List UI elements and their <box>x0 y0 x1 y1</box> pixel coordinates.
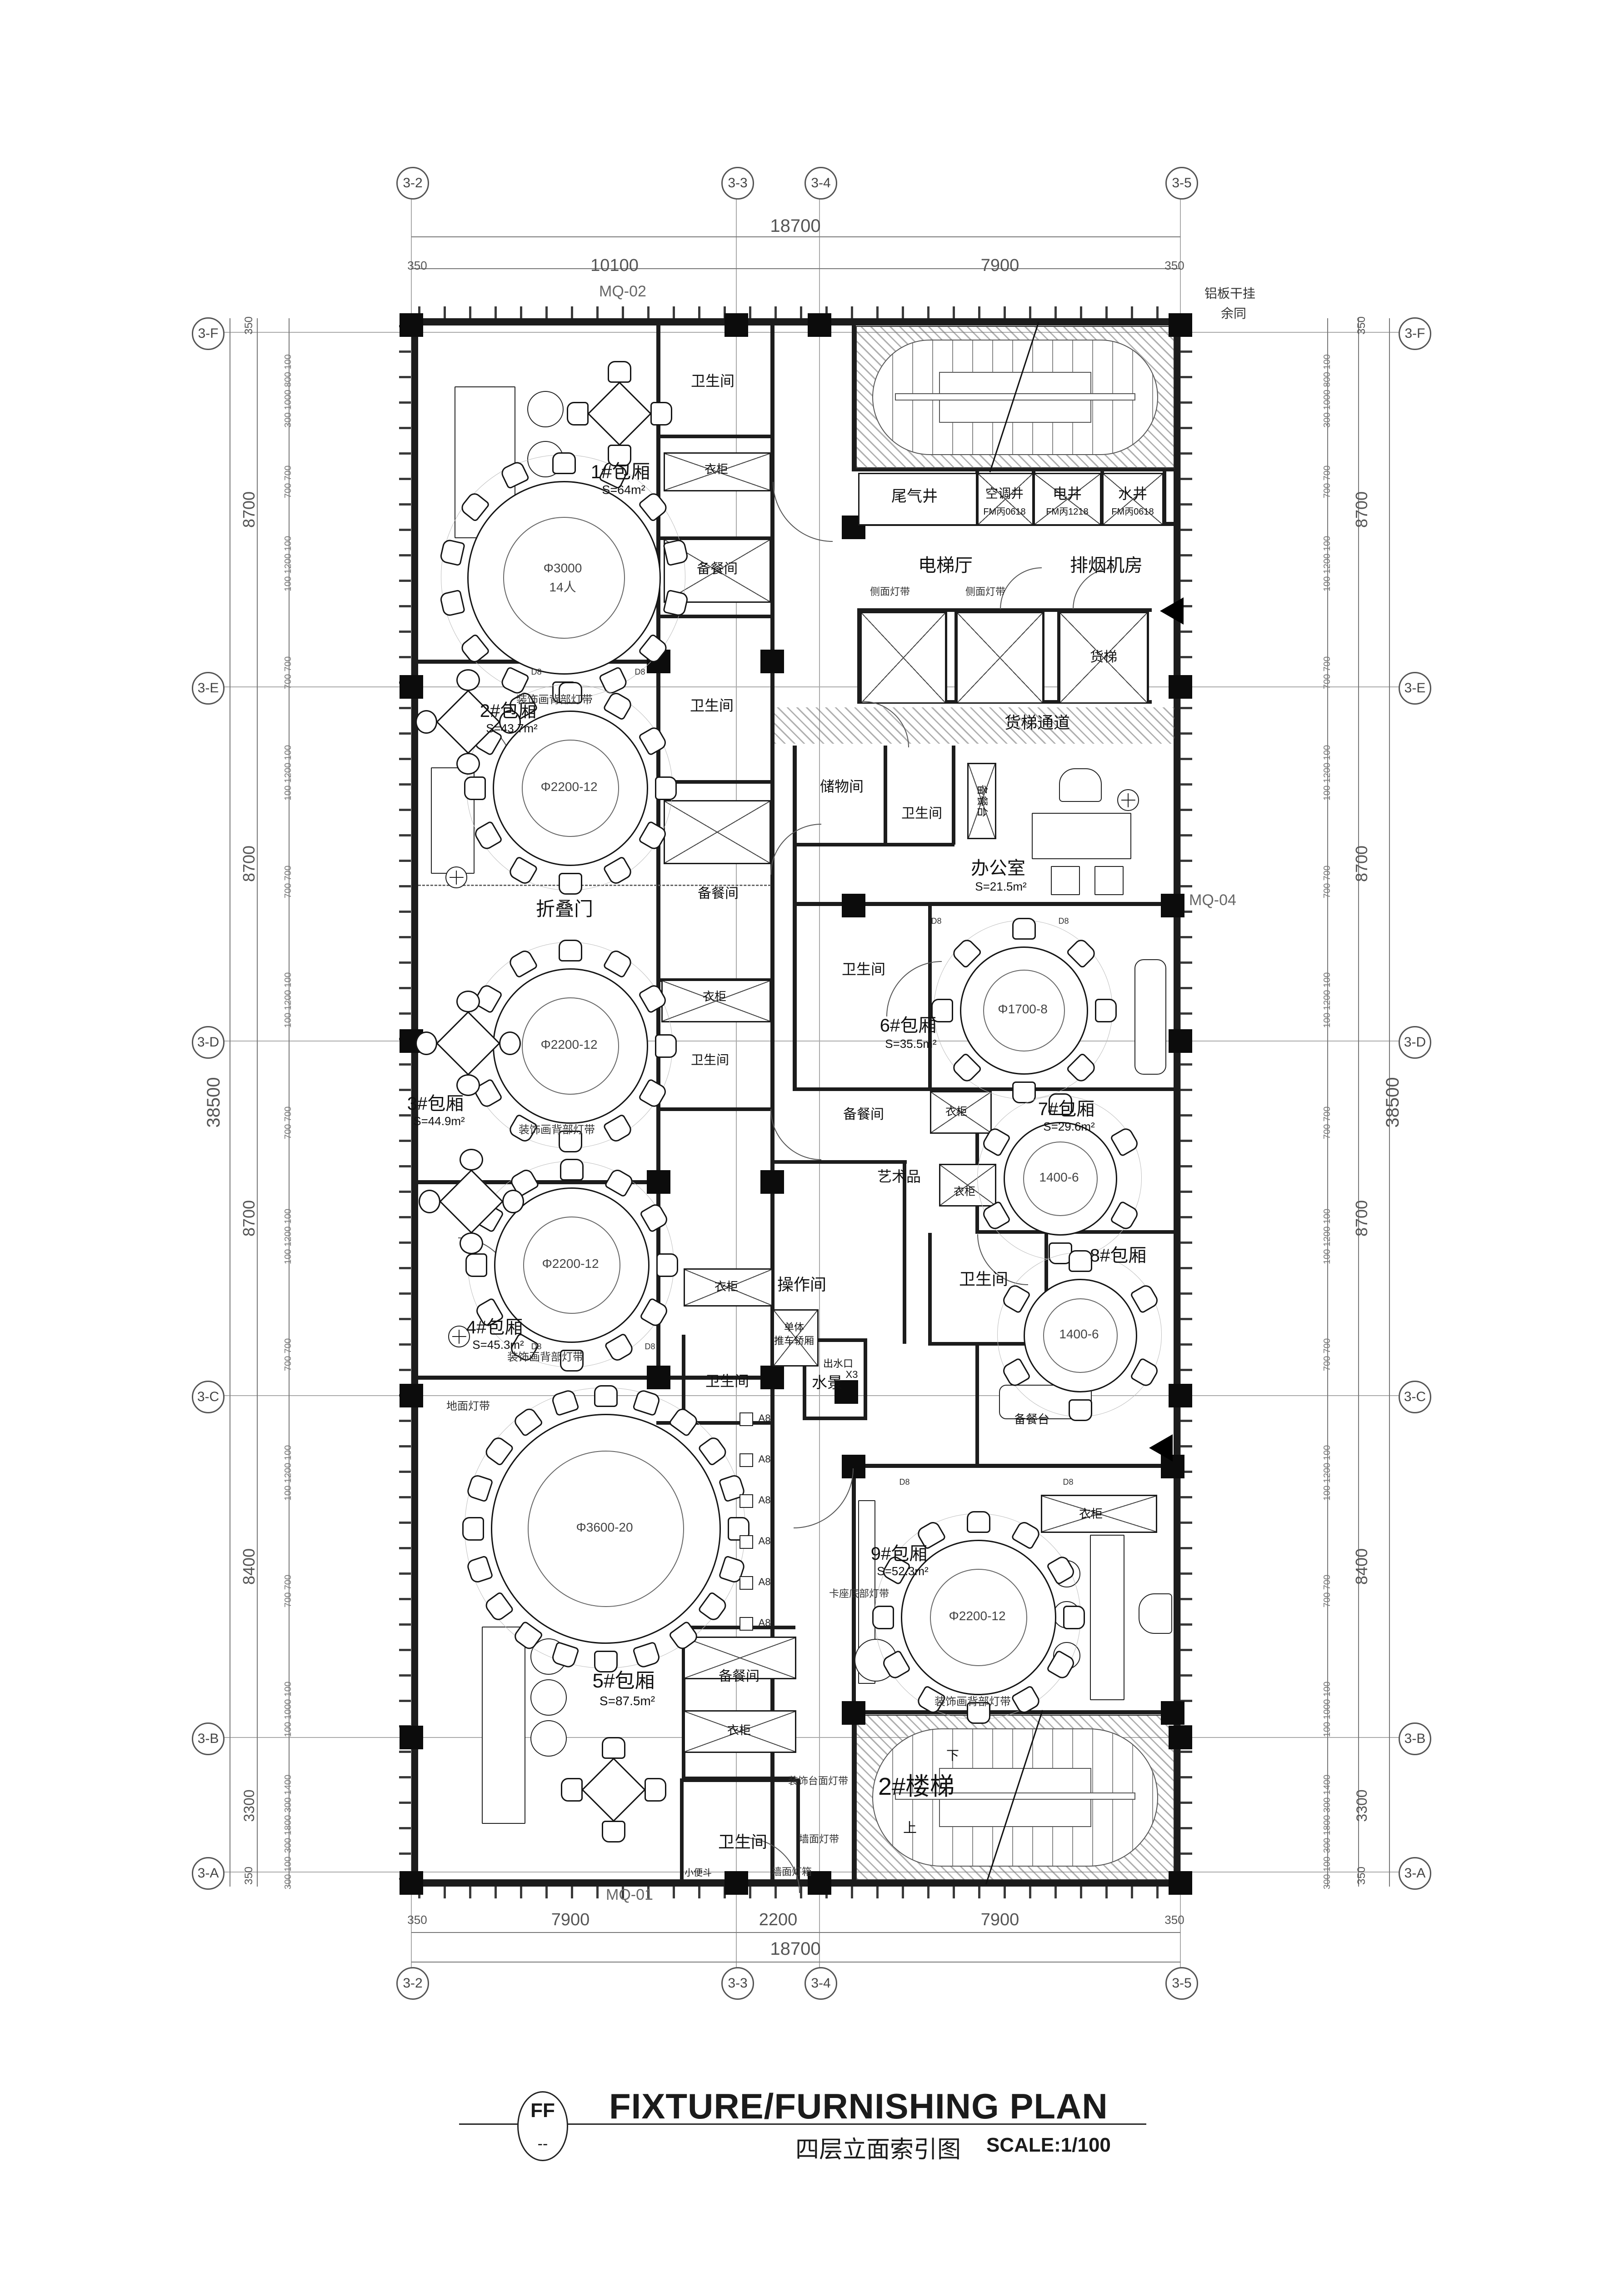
a8-fixture <box>740 1576 753 1590</box>
room-label-8: 8#包厢 <box>1090 1247 1147 1265</box>
wall <box>793 1087 932 1091</box>
grid-bubble-3-E: 3-E <box>192 672 225 705</box>
drawing-title: FIXTURE/FURNISHING PLAN <box>609 2086 1108 2127</box>
label-wardrobe: 衣柜 <box>945 1106 967 1117</box>
shaft-label-water: 水井 <box>1118 486 1147 501</box>
wall <box>411 318 1180 325</box>
chair <box>1095 999 1117 1022</box>
wall <box>770 1160 907 1164</box>
label-wardrobe: 衣柜 <box>1079 1508 1103 1520</box>
label-serving-counter: 备餐台 <box>976 785 987 817</box>
room-area-9: S=52.3m² <box>877 1565 928 1577</box>
curtainwall-mullions <box>1180 325 1192 1880</box>
room-label-storage: 储物间 <box>820 779 864 794</box>
mullion-dim: 100 1200 100 <box>284 536 293 591</box>
stair-down: 下 <box>946 1749 959 1762</box>
mullion-dim: 700 700 <box>1323 1575 1332 1607</box>
stair-1 <box>856 326 1174 469</box>
stair-up: 上 <box>903 1822 917 1835</box>
chair <box>560 1159 584 1181</box>
table-size-label: Φ2200-12 <box>949 1610 1005 1622</box>
note-side-lightstrip: 侧面灯带 <box>870 587 910 597</box>
note-painting-lightstrip: 装饰画背部灯带 <box>519 1125 595 1136</box>
mullion-dim: 700 700 <box>284 1575 293 1607</box>
furniture-rect <box>1051 866 1080 895</box>
mullion-dim: 700 700 <box>284 1106 293 1139</box>
room-label-5: 5#包厢 <box>593 1671 655 1691</box>
mullion-dim: 700 700 <box>1323 656 1332 689</box>
table-size-label: Φ1700-8 <box>998 1003 1048 1016</box>
structural-column <box>400 675 423 699</box>
room-label-6: 6#包厢 <box>880 1016 937 1035</box>
chair <box>602 1821 625 1842</box>
room-label-7: 7#包厢 <box>1038 1100 1095 1118</box>
drawing-sheet: 3-23-33-43-53-23-33-43-53-F3-E3-D3-C3-B3… <box>0 0 1624 2273</box>
chair <box>456 991 480 1012</box>
furniture-rect <box>1090 1535 1124 1700</box>
room-area-5: S=87.5m² <box>600 1695 655 1707</box>
label-wardrobe: 衣柜 <box>954 1187 975 1197</box>
a8-label: A8 <box>759 1454 771 1464</box>
drawing-scale: SCALE:1/100 <box>986 2134 1111 2157</box>
a8-fixture <box>740 1535 753 1549</box>
mullion-dim: 300 1000 800 100 <box>284 354 293 427</box>
dimension-line <box>230 318 230 1887</box>
grid-bubble-3-3: 3-3 <box>721 1967 754 2000</box>
grid-bubble-3-D: 3-D <box>1399 1026 1431 1059</box>
mullion-dim: 300 1800 300 1400 <box>1323 1775 1332 1853</box>
stool <box>530 1720 567 1757</box>
chair <box>594 1651 618 1672</box>
dim-seg: 7900 <box>981 1911 1019 1928</box>
table-size-label: 1400-6 <box>1039 1171 1079 1184</box>
chair <box>456 753 480 775</box>
label-folding-door: 折叠门 <box>536 900 593 919</box>
dimension-line <box>1358 318 1359 1887</box>
furniture-rect <box>1032 813 1131 859</box>
mullion-dim: 100 1200 100 <box>1323 536 1332 591</box>
dimension-line <box>411 1962 1180 1963</box>
door-swing <box>794 1468 854 1528</box>
room-area-6: S=35.5m² <box>885 1038 936 1050</box>
structural-column <box>760 650 784 673</box>
chair <box>1012 918 1036 940</box>
label-artwork: 艺术品 <box>877 1169 921 1184</box>
structural-column <box>1161 1701 1184 1725</box>
grid-bubble-3-D: 3-D <box>192 1026 225 1059</box>
facade-label-mq04: MQ-04 <box>1189 892 1236 908</box>
grid-bubble-3-F: 3-F <box>192 317 225 350</box>
wall <box>852 325 856 471</box>
grid-bubble-3-A: 3-A <box>1399 1857 1431 1890</box>
chair <box>419 1190 440 1213</box>
drawing-symbol-circle: FF -- <box>517 2091 568 2161</box>
lazy-susan <box>503 517 625 639</box>
room-area-1: S=64m² <box>602 484 645 496</box>
chair <box>645 1778 666 1802</box>
chair <box>502 1190 524 1213</box>
elevation-marker: D8 <box>1058 917 1069 925</box>
section-marker-icon <box>1149 1434 1173 1462</box>
dim-seg: 7900 <box>551 1911 590 1928</box>
dim-seg: 8700 <box>241 846 257 882</box>
drawing-symbol-sub: -- <box>538 2135 548 2153</box>
wall <box>975 1345 979 1467</box>
shaft-door-elec: FM丙1218 <box>1046 507 1088 516</box>
chair <box>552 452 576 474</box>
grid-bubble-3-B: 3-B <box>1399 1722 1431 1755</box>
room-label-pantry: 备餐间 <box>843 1108 884 1121</box>
mullion-dim: 300 1800 300 1400 <box>284 1775 293 1853</box>
dim-seg: 350 <box>1356 1867 1367 1885</box>
facade-label-mq01: MQ-01 <box>606 1887 653 1903</box>
structural-column <box>808 313 831 337</box>
structural-column <box>725 313 748 337</box>
square-table <box>587 381 651 446</box>
chair <box>1069 1399 1092 1421</box>
table-size-label: Φ2200-12 <box>542 1257 599 1270</box>
chair <box>559 873 582 895</box>
door-swing <box>770 1109 821 1160</box>
grid-bubble-3-C: 3-C <box>1399 1381 1431 1413</box>
wall <box>682 1777 795 1780</box>
drawing-subtitle-cn: 四层立面索引图 <box>795 2130 961 2164</box>
dim-seg: 8700 <box>1354 491 1370 528</box>
grid-bubble-3-4: 3-4 <box>805 167 837 200</box>
wall <box>884 746 887 845</box>
a8-label: A8 <box>759 1618 771 1628</box>
shaft-door-water: FM丙0618 <box>1111 507 1154 516</box>
grid-line-horizontal <box>218 1395 1400 1396</box>
elevation-marker: D8 <box>531 1342 541 1351</box>
dim-total-top: 18700 <box>770 217 820 235</box>
wall <box>656 435 773 438</box>
shaft-or-cabinet <box>860 612 946 704</box>
room-label-wc: 卫生间 <box>718 1834 767 1850</box>
mullion-dim: 300 1000 800 100 <box>1323 354 1332 427</box>
chair <box>465 1253 487 1277</box>
note-aluminum: 铝板干挂 <box>1204 287 1255 300</box>
note-painting-lightstrip: 装饰画背部灯带 <box>507 1352 584 1363</box>
mullion-dim: 700 700 <box>284 1338 293 1371</box>
elevation-marker: D8 <box>1063 1478 1073 1486</box>
chair <box>567 402 589 426</box>
room-label-wc: 卫生间 <box>705 1374 749 1388</box>
facade-label-mq02: MQ-02 <box>599 284 646 299</box>
structural-column <box>760 1170 784 1194</box>
room-label-wc: 卫生间 <box>959 1271 1008 1287</box>
structural-column <box>400 313 423 337</box>
dim-seg: 7900 <box>981 257 1019 274</box>
label-dumbwaiter-2: 推车轿厢 <box>774 1336 814 1346</box>
room-label-pantry: 备餐间 <box>697 562 738 576</box>
drawing-symbol: FF <box>530 2099 555 2122</box>
door-swing <box>773 482 833 542</box>
structural-column <box>647 1366 670 1389</box>
dim-seg: 8400 <box>1354 1548 1370 1585</box>
structural-column <box>1169 1726 1192 1749</box>
wall <box>903 1160 906 1344</box>
elevation-marker: D8 <box>635 668 645 676</box>
dim-seg: 2200 <box>759 1911 798 1928</box>
note-counter-lightstrip: 装饰台面灯带 <box>788 1776 848 1786</box>
label-wardrobe: 衣柜 <box>727 1724 751 1736</box>
mullion-dim: 700 700 <box>1323 1106 1332 1139</box>
chair <box>462 1517 484 1541</box>
wall <box>952 746 955 845</box>
grid-line-horizontal <box>218 1737 1400 1738</box>
a8-fixture <box>740 1617 753 1631</box>
stool <box>527 391 564 427</box>
elevation-marker: D8 <box>645 1342 655 1351</box>
room-label-pantry: 备餐间 <box>698 887 739 901</box>
square-table <box>581 1757 645 1822</box>
mullion-dim: 700 700 <box>284 656 293 689</box>
chair <box>602 1737 625 1759</box>
a8-label: A8 <box>759 1577 771 1587</box>
chair <box>456 669 480 691</box>
mullion-dim: 300 100 <box>1323 1857 1332 1889</box>
chair <box>415 1031 437 1055</box>
a8-fixture <box>740 1453 753 1467</box>
dim-seg: 3300 <box>242 1789 256 1822</box>
mullion-dim: 700 700 <box>1323 866 1332 898</box>
a8-label: A8 <box>759 1536 771 1546</box>
label-wardrobe: 衣柜 <box>703 991 726 1002</box>
wall <box>796 1778 800 1880</box>
dining-table-1 <box>467 481 661 675</box>
table-size-label: Φ2200-12 <box>540 781 597 793</box>
label-urinal: 小便斗 <box>685 1868 712 1877</box>
floor-lamp-symbol <box>445 866 467 888</box>
structural-column <box>842 1701 865 1725</box>
grid-bubble-3-3: 3-3 <box>721 167 754 200</box>
dim-seg: 350 <box>407 260 427 271</box>
room-label-wc: 卫生间 <box>691 1054 729 1066</box>
grid-bubble-3-5: 3-5 <box>1165 167 1198 200</box>
chair <box>464 776 486 800</box>
dim-seg: 350 <box>407 1914 427 1926</box>
dimension-line <box>411 1932 1180 1933</box>
floor-lamp-symbol <box>1117 789 1139 811</box>
chair <box>872 1606 894 1629</box>
dim-seg: 350 <box>1164 1914 1184 1926</box>
mullion-dim: 100 1200 100 <box>1323 972 1332 1028</box>
a8-fixture <box>740 1412 753 1426</box>
shaft-or-cabinet <box>664 800 771 864</box>
dim-seg: 8400 <box>241 1548 257 1585</box>
dim-seg: 350 <box>1356 316 1367 335</box>
dim-seg: 8700 <box>1354 846 1370 882</box>
dimension-line <box>257 318 258 1887</box>
room-label-9: 9#包厢 <box>871 1545 928 1563</box>
dim-seg: 8700 <box>241 491 257 528</box>
mullion-dim: 100 1200 100 <box>284 745 293 801</box>
room-label-wc: 卫生间 <box>691 374 735 388</box>
furniture-rect <box>1094 866 1124 895</box>
chair <box>415 710 437 734</box>
room-label-pantry: 备餐间 <box>719 1670 760 1683</box>
room-label-wc: 卫生间 <box>842 962 885 976</box>
chair <box>656 1253 678 1277</box>
mullion-dim: 700 700 <box>1323 1338 1332 1371</box>
dim-seg: 350 <box>1164 260 1184 271</box>
structural-column <box>647 1170 670 1194</box>
mullion-dim: 100 1200 100 <box>1323 745 1332 801</box>
chair <box>559 940 582 961</box>
door-swing <box>1000 567 1042 609</box>
label-dumbwaiter-1: 单体 <box>784 1322 804 1332</box>
grid-bubble-3-5: 3-5 <box>1165 1967 1198 2000</box>
table-seats-label: 14人 <box>549 581 576 594</box>
wall <box>1174 318 1180 1887</box>
room-label-office: 办公室 <box>971 859 1025 877</box>
room-area-office: S=21.5m² <box>975 881 1026 892</box>
elevation-marker: D8 <box>899 1478 909 1486</box>
structural-column <box>400 1726 423 1749</box>
wall <box>928 1233 932 1346</box>
mullion-dim: 100 1200 100 <box>284 1209 293 1264</box>
floor-plan-canvas: 3-23-33-43-53-23-33-43-53-F3-E3-D3-C3-B3… <box>0 0 1624 2273</box>
room-label-3: 3#包厢 <box>407 1095 464 1113</box>
label-x3: X3 <box>846 1370 858 1380</box>
grid-bubble-3-B: 3-B <box>192 1722 225 1755</box>
dim-total-bottom: 18700 <box>770 1940 820 1958</box>
label-water-outlet: 出水口 <box>823 1359 853 1369</box>
table-size-label: 1400-6 <box>1059 1328 1099 1341</box>
note-booth-lightstrip: 卡座底部灯带 <box>829 1589 889 1599</box>
room-label-wc: 卫生间 <box>690 698 734 713</box>
room-label-1: 1#包厢 <box>591 462 650 481</box>
furniture-rect <box>482 1627 525 1824</box>
wall <box>803 1417 867 1420</box>
room-label-wc: 卫生间 <box>901 807 942 821</box>
dim-seg: 10100 <box>590 257 639 274</box>
grid-line-horizontal <box>218 1041 1400 1041</box>
a8-fixture <box>740 1494 753 1508</box>
room-label-smoke: 排烟机房 <box>1070 556 1143 575</box>
a8-label: A8 <box>759 1495 771 1505</box>
note-aluminum-2: 余同 <box>1221 307 1246 320</box>
label-serving-counter: 备餐台 <box>1014 1413 1049 1425</box>
structural-column <box>1161 894 1184 917</box>
dim-seg: 3300 <box>1354 1789 1369 1822</box>
label-freight-elev: 货梯 <box>1090 651 1117 664</box>
shaft-label-exhaust: 尾气井 <box>891 489 938 504</box>
note-floor-lightstrip: 地面灯带 <box>446 1401 490 1412</box>
room-area-2: S=43.7m² <box>486 722 537 734</box>
mullion-dim: 100 1200 100 <box>1323 1209 1332 1264</box>
grid-bubble-3-C: 3-C <box>192 1381 225 1413</box>
shaft-label-ac: 空调井 <box>985 487 1024 500</box>
room-label-4: 4#包厢 <box>466 1318 523 1337</box>
door-swing <box>770 824 821 875</box>
structural-column <box>842 894 865 917</box>
chair <box>460 1232 483 1254</box>
wall <box>793 906 797 1090</box>
mullion-dim: 300 100 <box>284 1857 293 1889</box>
grid-bubble-3-E: 3-E <box>1399 672 1431 705</box>
room-label-freight-corridor: 货梯通道 <box>1004 715 1070 731</box>
label-waterscape: 水景 <box>812 1375 843 1391</box>
room-area-3: S=44.9m² <box>413 1115 465 1127</box>
structural-column <box>1169 313 1192 337</box>
wall <box>852 1710 856 1881</box>
note-painting-lightstrip: 装饰画背部灯带 <box>516 695 593 706</box>
shaft-label-elec: 电井 <box>1053 486 1082 501</box>
note-wall-lightbox: 墙面灯箱 <box>772 1867 812 1877</box>
mullion-dim: 100 1200 100 <box>284 1445 293 1501</box>
grid-line-vertical <box>819 195 820 1968</box>
structural-column <box>400 1384 423 1407</box>
note-side-lightstrip: 侧面灯带 <box>965 587 1005 597</box>
chair <box>594 1385 618 1407</box>
dim-seg: 8700 <box>241 1200 257 1237</box>
chair <box>499 1031 521 1055</box>
dim-seg: 8700 <box>1354 1200 1370 1237</box>
elevation-marker: D8 <box>531 668 541 676</box>
structural-column <box>1169 1384 1192 1407</box>
structural-column <box>760 1366 784 1389</box>
chair <box>655 1034 677 1058</box>
curtainwall-mullions <box>418 306 1174 318</box>
wall <box>864 1338 867 1420</box>
room-label-stair2: 2#楼梯 <box>878 1774 954 1799</box>
hatched-area <box>775 707 1174 744</box>
chair <box>650 402 672 426</box>
mullion-dim: 100 1200 100 <box>284 972 293 1028</box>
chair <box>967 1511 990 1533</box>
dim-total-right: 38500 <box>1384 1077 1402 1127</box>
room-label-operation: 操作间 <box>777 1277 826 1293</box>
a8-label: A8 <box>759 1413 771 1423</box>
structural-column <box>1169 1029 1192 1053</box>
stool <box>530 1679 567 1716</box>
chair <box>1063 1606 1085 1629</box>
wall <box>793 746 797 906</box>
dimension-line <box>411 236 1180 237</box>
label-wardrobe: 衣柜 <box>715 1281 738 1292</box>
grid-line-horizontal <box>218 686 1400 687</box>
grid-bubble-3-F: 3-F <box>1399 317 1431 350</box>
structural-column <box>1169 675 1192 699</box>
furniture-rect <box>1059 768 1102 802</box>
grid-bubble-3-2: 3-2 <box>396 1967 429 2000</box>
chair <box>608 361 631 383</box>
mullion-dim: 100 1200 100 <box>1323 1445 1332 1501</box>
table-size-label: Φ3000 <box>544 562 582 575</box>
mullion-dim: 100 1000 100 <box>1323 1682 1332 1737</box>
wall <box>656 1107 773 1111</box>
mullion-dim: 700 700 <box>1323 466 1332 498</box>
section-marker-icon <box>1160 597 1184 625</box>
mullion-dim: 700 700 <box>284 866 293 898</box>
elevation-marker: D8 <box>931 917 941 925</box>
dim-total-left: 38500 <box>205 1077 223 1127</box>
chair <box>662 589 689 617</box>
room-area-4: S=45.3m² <box>472 1339 524 1351</box>
dimension-line <box>411 268 1180 269</box>
chair <box>655 776 677 800</box>
label-wardrobe: 衣柜 <box>705 463 728 475</box>
grid-bubble-3-2: 3-2 <box>396 167 429 200</box>
wall <box>680 1778 684 1880</box>
shaft-door-ac: FM丙0618 <box>983 507 1025 516</box>
grid-bubble-3-4: 3-4 <box>805 1967 837 2000</box>
furniture-rect <box>1139 1593 1172 1634</box>
room-area-7: S=29.6m² <box>1043 1121 1094 1132</box>
note-wall-lightstrip: 墙面灯带 <box>799 1834 839 1844</box>
